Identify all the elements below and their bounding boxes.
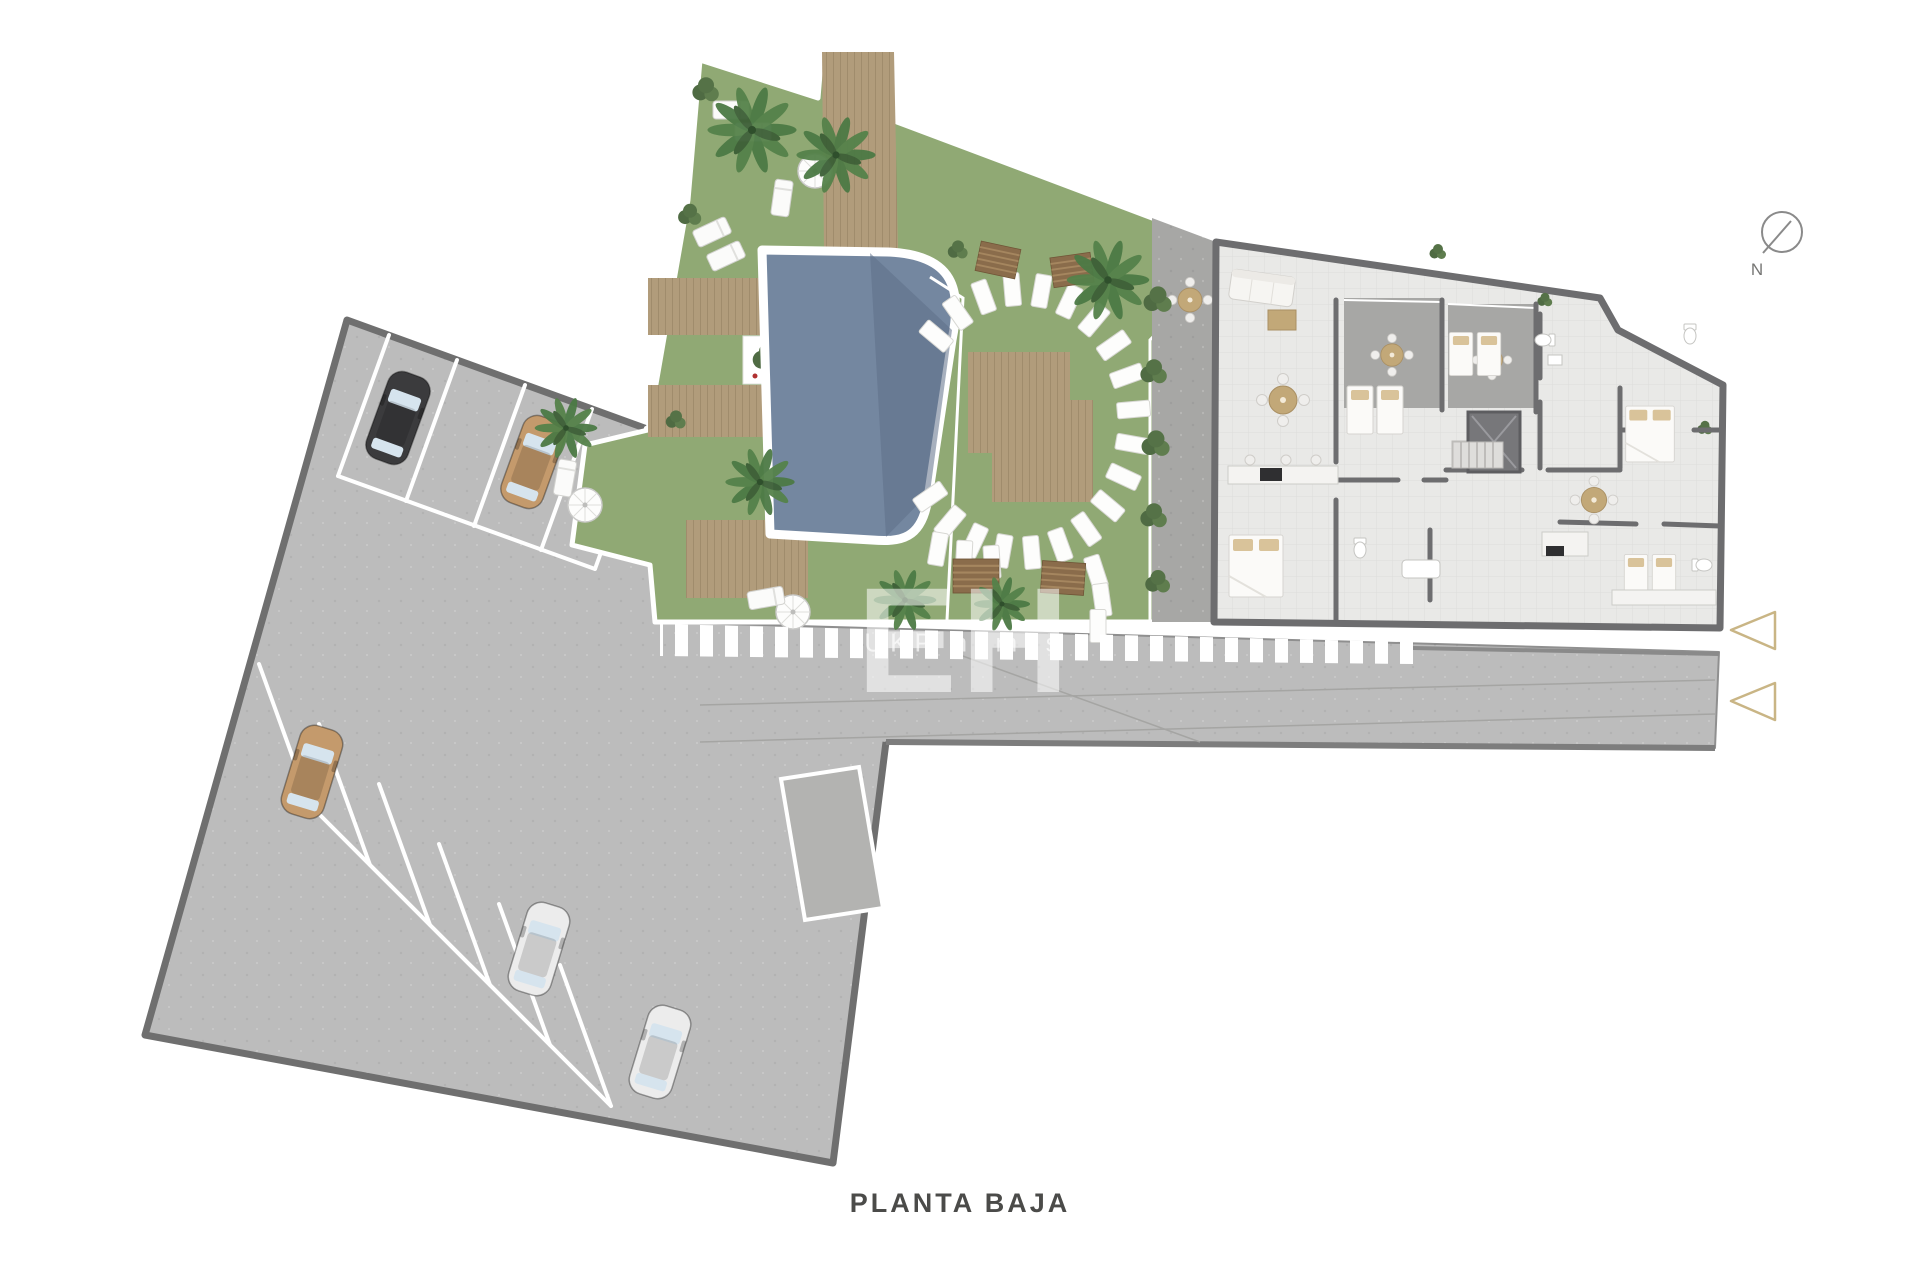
site-plan-page: EH UKP homes N PLANTA BAJA [0,0,1920,1280]
compass-north-label: N [1751,260,1763,280]
terrace-texture [1152,218,1216,622]
coffee-table [1268,310,1296,330]
toilet [1354,538,1366,558]
single-bed [1477,332,1500,375]
building [1214,242,1723,628]
compass-icon [1762,212,1802,253]
wood-deck [992,400,1093,502]
single-bed [1377,386,1403,434]
bathroom-sink [1548,355,1562,365]
parasol [568,488,602,522]
toilet [1535,334,1555,346]
page-title: PLANTA BAJA [850,1188,1071,1219]
toilet [1692,559,1712,571]
double-bed [1626,406,1675,462]
wood-deck [648,385,775,437]
garden [535,50,1216,643]
single-bed [1347,386,1373,434]
wood-deck [648,278,775,335]
single-bed [1449,332,1472,375]
double-bed [1229,535,1283,597]
entrance-arrow [1731,612,1775,649]
staircase [1452,441,1503,468]
floor-plan-canvas [0,0,1920,1280]
kitchen-counter [1612,590,1716,605]
entrance-arrows [1731,612,1775,720]
toilet [1684,324,1696,344]
pergola-bench [1040,561,1085,596]
entrance-arrow [1731,683,1775,720]
pergola-bench [953,559,999,593]
kitchen-island [1542,532,1588,556]
bathtub [1402,560,1440,578]
